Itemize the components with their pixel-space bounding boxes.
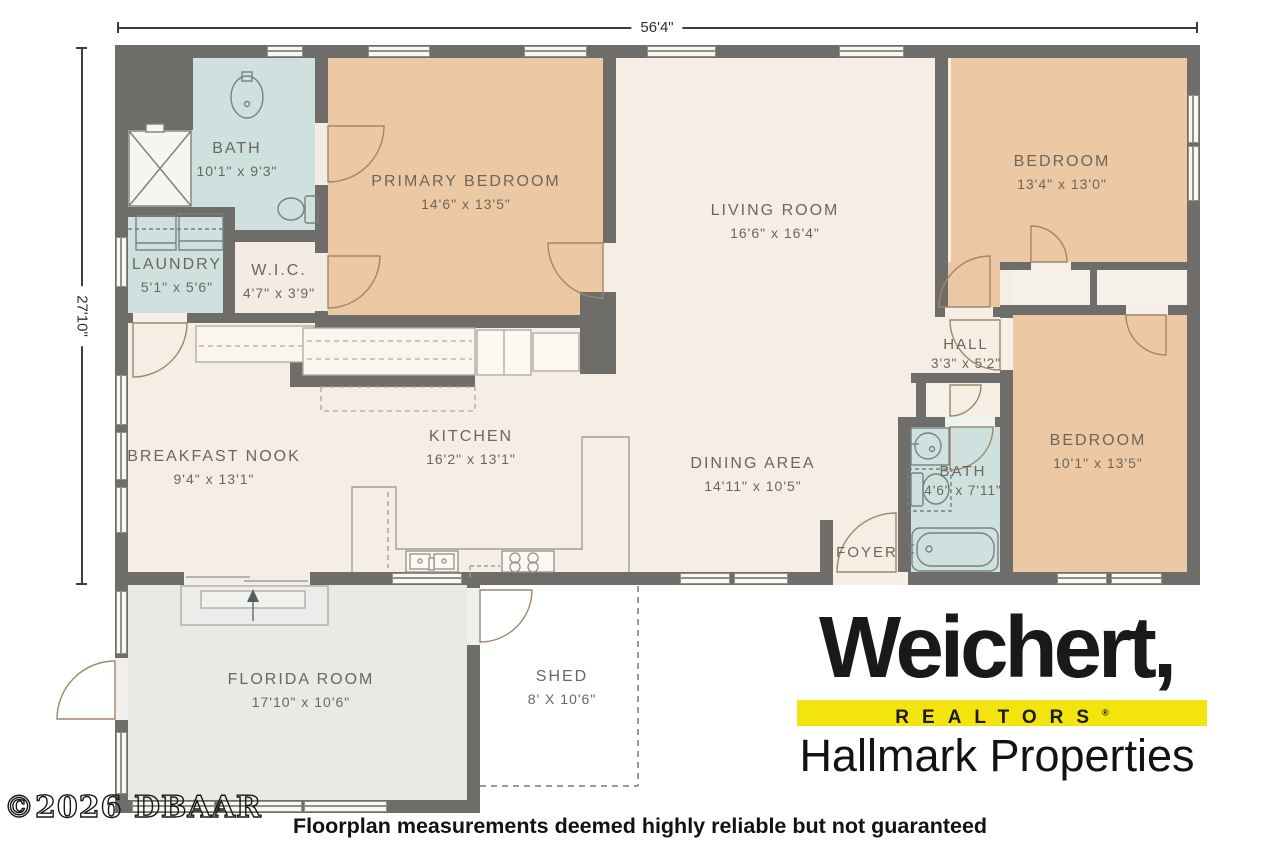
wall-hall-bottom xyxy=(911,373,1000,383)
room-name: LAUNDRY xyxy=(132,256,222,274)
window xyxy=(304,801,387,812)
room-name: LIVING ROOM xyxy=(711,202,840,220)
wall-stub-kitchen xyxy=(580,292,616,374)
room-label-primary-bedroom: PRIMARY BEDROOM 14'6" x 13'5" xyxy=(371,173,560,212)
room-name: PRIMARY BEDROOM xyxy=(371,173,560,191)
window xyxy=(734,573,788,584)
window xyxy=(392,573,462,584)
opening-florida-shed-door xyxy=(467,588,480,645)
opening-closet1-door xyxy=(1031,262,1071,270)
room-dims: 14'11" x 10'5" xyxy=(690,478,815,494)
room-label-florida-room: FLORIDA ROOM 17'10" x 10'6" xyxy=(228,671,375,710)
room-name: BATH xyxy=(924,463,1002,480)
window xyxy=(267,46,303,57)
room-dims: 16'2" x 13'1" xyxy=(426,451,516,467)
registered-mark: ® xyxy=(1102,708,1109,718)
room-dims: 4'7" x 3'9" xyxy=(243,285,315,301)
wall-laundry-wic xyxy=(223,217,235,313)
left-dimension-tick-bottom xyxy=(76,583,87,585)
room-label-hall: HALL 3'3" x 5'2" xyxy=(931,336,1001,371)
room-dims: 9'4" x 13'1" xyxy=(127,471,301,487)
opening-bath2-door xyxy=(945,417,995,427)
copyright-watermark: ©2026 DBAAR xyxy=(4,790,262,825)
opening-wic-door xyxy=(315,253,328,311)
wall-primary-bottom xyxy=(315,315,616,328)
realtors-label: REALTORS® xyxy=(895,707,1108,728)
overall-depth-label: 27'10" xyxy=(73,286,92,346)
window xyxy=(680,573,730,584)
wall-hall-closet-side xyxy=(916,383,926,419)
wall-bedroomtr-bottom xyxy=(1000,262,1187,270)
room-dims: 5'1" x 5'6" xyxy=(132,279,222,295)
room-dims: 17'10" x 10'6" xyxy=(228,694,375,710)
room-name: SHED xyxy=(528,668,597,686)
room-label-living-room: LIVING ROOM 16'6" x 16'4" xyxy=(711,202,840,241)
room-label-bath1: BATH 10'1" x 9'3" xyxy=(197,140,278,179)
utility-block xyxy=(115,45,193,130)
room-label-breakfast-nook: BREAKFAST NOOK 9'4" x 13'1" xyxy=(127,448,301,487)
room-dims: 16'6" x 16'4" xyxy=(711,225,840,241)
opening-florida-exterior-door xyxy=(115,658,128,720)
window xyxy=(116,732,127,794)
room-name: KITCHEN xyxy=(426,428,516,446)
closet1-floor xyxy=(1013,270,1090,305)
office-name: Hallmark Properties xyxy=(782,730,1212,782)
wall-primary-right xyxy=(603,45,616,243)
window xyxy=(524,46,587,57)
brokerage-logo-text: Weichert, xyxy=(780,600,1212,696)
window xyxy=(1188,95,1199,143)
room-name: HALL xyxy=(931,336,1001,353)
window xyxy=(116,487,127,533)
room-dims: 8' X 10'6" xyxy=(528,691,597,707)
window xyxy=(116,237,127,287)
top-dimension-tick-right xyxy=(1196,22,1198,33)
window xyxy=(1057,573,1107,584)
opening-sliding-door xyxy=(184,572,310,585)
room-dims: 13'4" x 13'0" xyxy=(1014,176,1111,192)
room-name: DINING AREA xyxy=(690,455,815,473)
opening-closet2-door xyxy=(1126,305,1168,315)
window xyxy=(1188,146,1199,201)
left-dimension-tick-top xyxy=(76,47,87,49)
room-dims: 3'3" x 5'2" xyxy=(931,356,1001,371)
shed-door xyxy=(480,590,532,642)
room-name: BATH xyxy=(197,140,278,158)
window xyxy=(1111,573,1162,584)
window xyxy=(116,375,127,425)
overall-width-label: 56'4" xyxy=(631,18,682,37)
window xyxy=(839,46,904,57)
room-name: FLORIDA ROOM xyxy=(228,671,375,689)
wall-dining-bath2 xyxy=(898,417,911,572)
wall-bath1-wic xyxy=(227,230,320,242)
opening-bedroombr-door xyxy=(1000,318,1013,370)
room-name: BEDROOM xyxy=(1014,153,1111,171)
room-label-wic: W.I.C. 4'7" x 3'9" xyxy=(243,262,315,301)
wall-bath1-laundry xyxy=(115,207,235,217)
bedroom-tr-lobe xyxy=(948,262,1000,307)
room-name: FOYER xyxy=(836,544,898,561)
room-label-shed: SHED 8' X 10'6" xyxy=(528,668,597,707)
room-label-foyer: FOYER xyxy=(836,544,898,561)
opening-bedroomtr-door xyxy=(945,307,993,317)
floorplan-page: 56'4" 27'10" xyxy=(0,0,1280,850)
hall-closet-floor xyxy=(926,383,950,419)
room-label-bedroom-br: BEDROOM 10'1" x 13'5" xyxy=(1050,432,1147,471)
florida-exterior-door xyxy=(57,661,115,719)
window xyxy=(116,432,127,480)
window xyxy=(647,46,716,57)
top-dimension-tick-left xyxy=(117,22,119,33)
room-label-dining-area: DINING AREA 14'11" x 10'5" xyxy=(690,455,815,494)
realtors-bar: REALTORS® xyxy=(797,700,1207,726)
room-label-bath2: BATH 4'6" x 7'11" xyxy=(924,463,1002,498)
room-name: W.I.C. xyxy=(243,262,315,280)
room-label-kitchen: KITCHEN 16'2" x 13'1" xyxy=(426,428,516,467)
closet2-floor xyxy=(1097,270,1187,305)
wall-foyer-stub xyxy=(820,520,833,572)
room-label-laundry: LAUNDRY 5'1" x 5'6" xyxy=(132,256,222,295)
opening-foyer-entry xyxy=(833,572,908,585)
room-dims: 10'1" x 9'3" xyxy=(197,163,278,179)
opening-bath1-door xyxy=(315,123,328,185)
bath2-floor xyxy=(910,425,1000,572)
room-dims: 10'1" x 13'5" xyxy=(1050,455,1147,471)
wall-pantry-bottom xyxy=(290,375,475,387)
wall-living-bedroomtr xyxy=(935,45,948,307)
room-name: BEDROOM xyxy=(1050,432,1147,450)
room-name: BREAKFAST NOOK xyxy=(127,448,301,466)
room-label-bedroom-tr: BEDROOM 13'4" x 13'0" xyxy=(1014,153,1111,192)
room-dims: 14'6" x 13'5" xyxy=(371,196,560,212)
opening-laundry-door xyxy=(133,313,187,323)
window xyxy=(368,46,430,57)
window xyxy=(116,591,127,654)
room-dims: 4'6" x 7'11" xyxy=(924,483,1002,498)
